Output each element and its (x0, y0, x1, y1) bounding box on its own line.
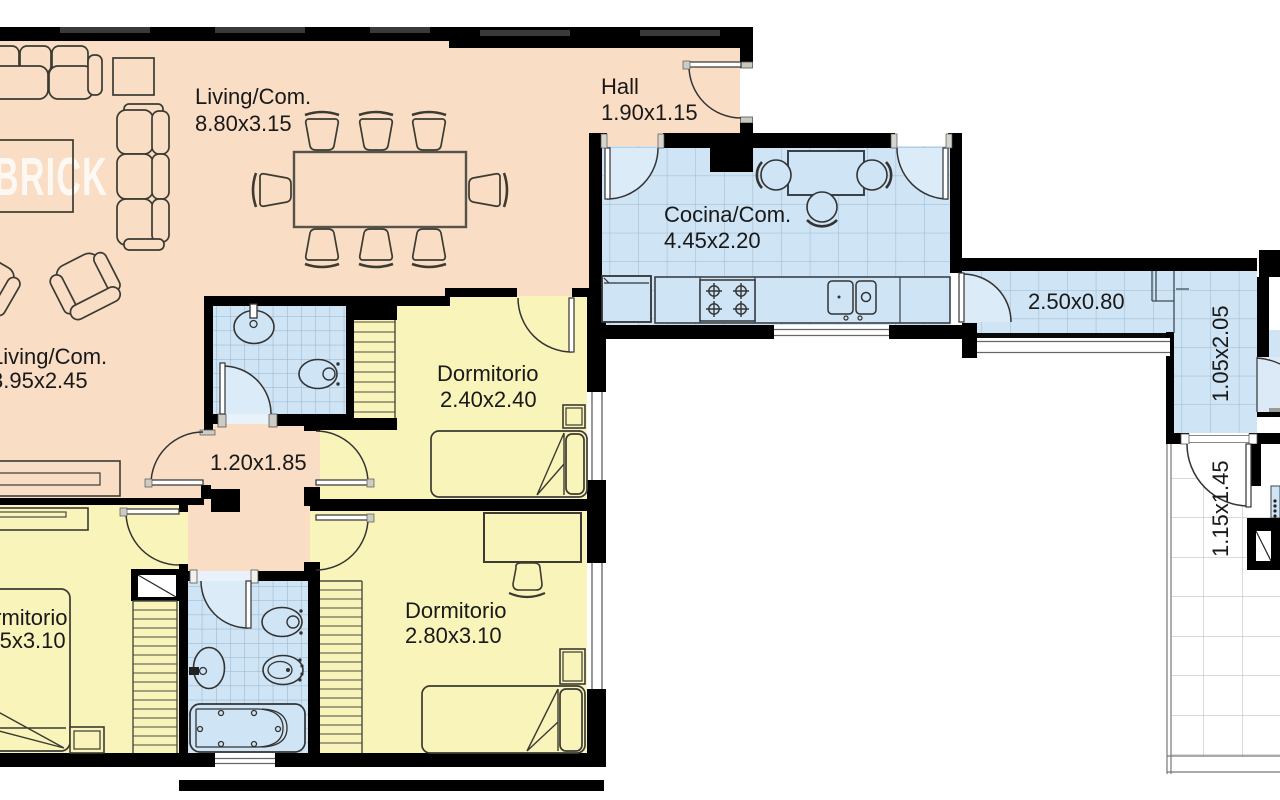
svg-text:1.20x1.85: 1.20x1.85 (210, 450, 307, 475)
svg-text:BRICK: BRICK (0, 146, 108, 207)
svg-text:1.90x1.15: 1.90x1.15 (601, 100, 698, 125)
svg-text:Living/Com.: Living/Com. (0, 344, 107, 369)
svg-text:Dormitorio: Dormitorio (437, 361, 538, 386)
svg-text:2.50x0.80: 2.50x0.80 (1028, 289, 1125, 314)
svg-text:1.15x1.45: 1.15x1.45 (1208, 460, 1233, 557)
svg-text:Hall: Hall (601, 74, 639, 99)
svg-text:8.80x3.15: 8.80x3.15 (195, 111, 292, 136)
svg-text:Dormitorio: Dormitorio (405, 598, 506, 623)
svg-text:Cocina/Com.: Cocina/Com. (664, 202, 791, 227)
svg-text:2.40x2.40: 2.40x2.40 (440, 387, 537, 412)
svg-text:4.45x2.20: 4.45x2.20 (664, 228, 761, 253)
svg-text:1.05x2.05: 1.05x2.05 (1208, 305, 1233, 402)
svg-text:2.80x3.10: 2.80x3.10 (405, 623, 502, 648)
svg-text:2.95x3.10: 2.95x3.10 (0, 628, 66, 653)
svg-text:3.95x2.45: 3.95x2.45 (0, 368, 88, 393)
svg-text:Dormitorio: Dormitorio (0, 605, 67, 630)
svg-text:Living/Com.: Living/Com. (195, 84, 311, 109)
